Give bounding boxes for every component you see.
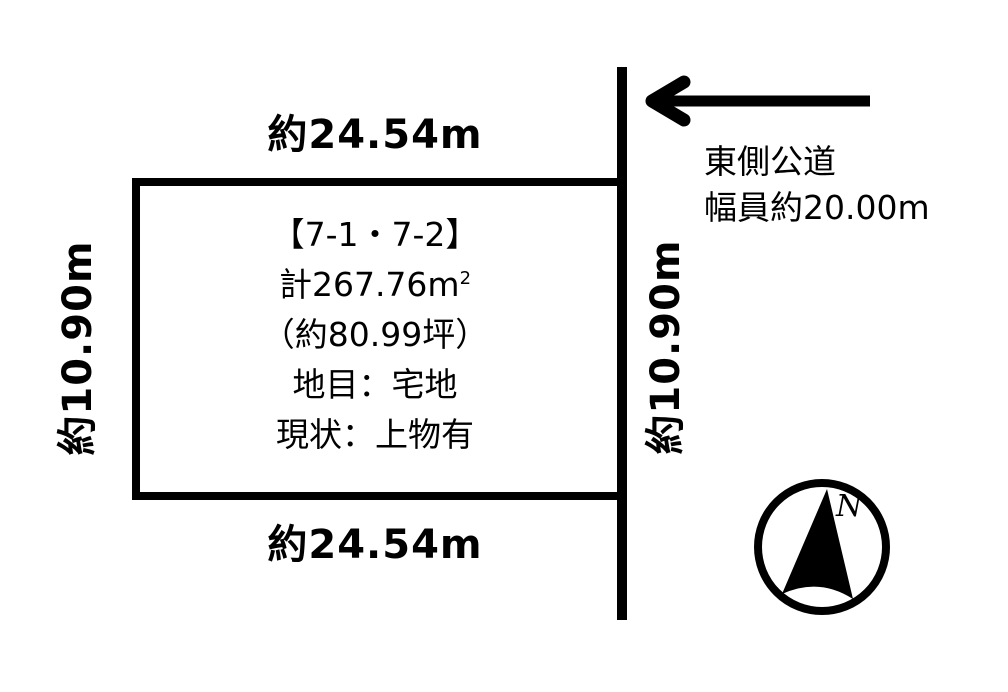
diagram-graphics: N (0, 0, 1008, 692)
north-arrow-icon: N (758, 483, 886, 611)
land-plot-diagram: 約24.54m 約24.54m 約10.90m 約10.90m 【7-1・7-2… (0, 0, 1008, 692)
road-direction-arrow-icon (652, 82, 870, 120)
compass-north-label: N (835, 489, 864, 524)
